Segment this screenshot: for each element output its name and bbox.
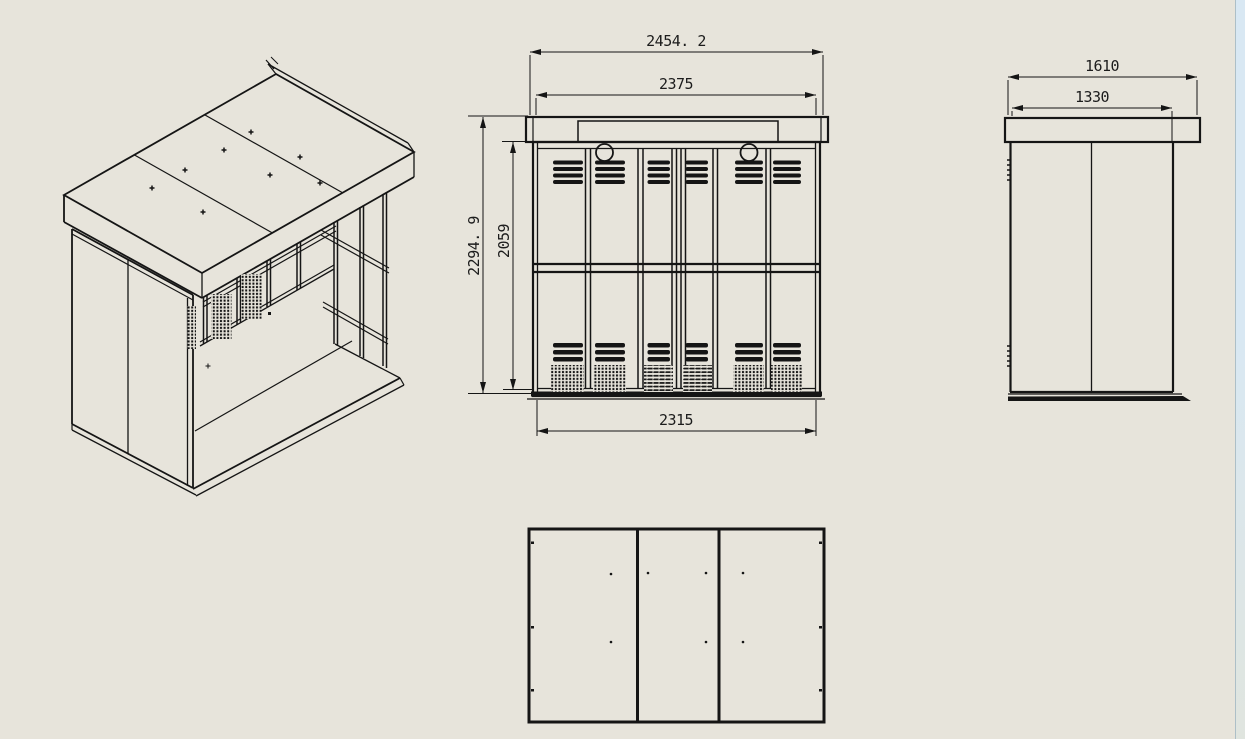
dimension-front-overall-width: 2454. 2	[530, 32, 823, 115]
drawing-sheet: 2454. 2 2375 2294. 9 2059	[0, 0, 1245, 739]
gland-circle-right	[741, 144, 758, 161]
bottom-view	[529, 529, 824, 722]
gland-circle-left	[596, 144, 613, 161]
dimension-label: 1610	[1085, 57, 1120, 75]
dimension-front-inner-width: 2375	[536, 75, 816, 115]
side-view: 1610 1330	[1005, 57, 1200, 401]
dimension-label: 2375	[659, 75, 693, 93]
panel-screw-marks	[610, 572, 745, 644]
viewport-edge-strip	[1235, 0, 1245, 739]
technical-drawing: 2454. 2 2375 2294. 9 2059	[0, 0, 1245, 739]
interior-vent-grilles	[188, 274, 272, 349]
dimension-label: 2454. 2	[646, 32, 706, 50]
dimension-front-body-height: 2059	[495, 142, 549, 391]
dimension-front-base-width: 2315	[537, 400, 816, 436]
dimension-label: 1330	[1075, 88, 1110, 106]
front-view: 2454. 2 2375 2294. 9 2059	[465, 32, 828, 436]
dimension-label: 2315	[659, 411, 693, 429]
roof-screw-marks	[150, 130, 323, 215]
dimension-label: 2294. 9	[465, 216, 483, 276]
dimension-label: 2059	[495, 223, 513, 258]
right-wall-framing	[321, 192, 389, 368]
dimension-side-inner-depth: 1330	[1012, 88, 1172, 142]
dimension-side-overall-depth: 1610	[1008, 57, 1197, 115]
isometric-view	[64, 57, 414, 496]
edge-weld-marks	[531, 542, 822, 692]
